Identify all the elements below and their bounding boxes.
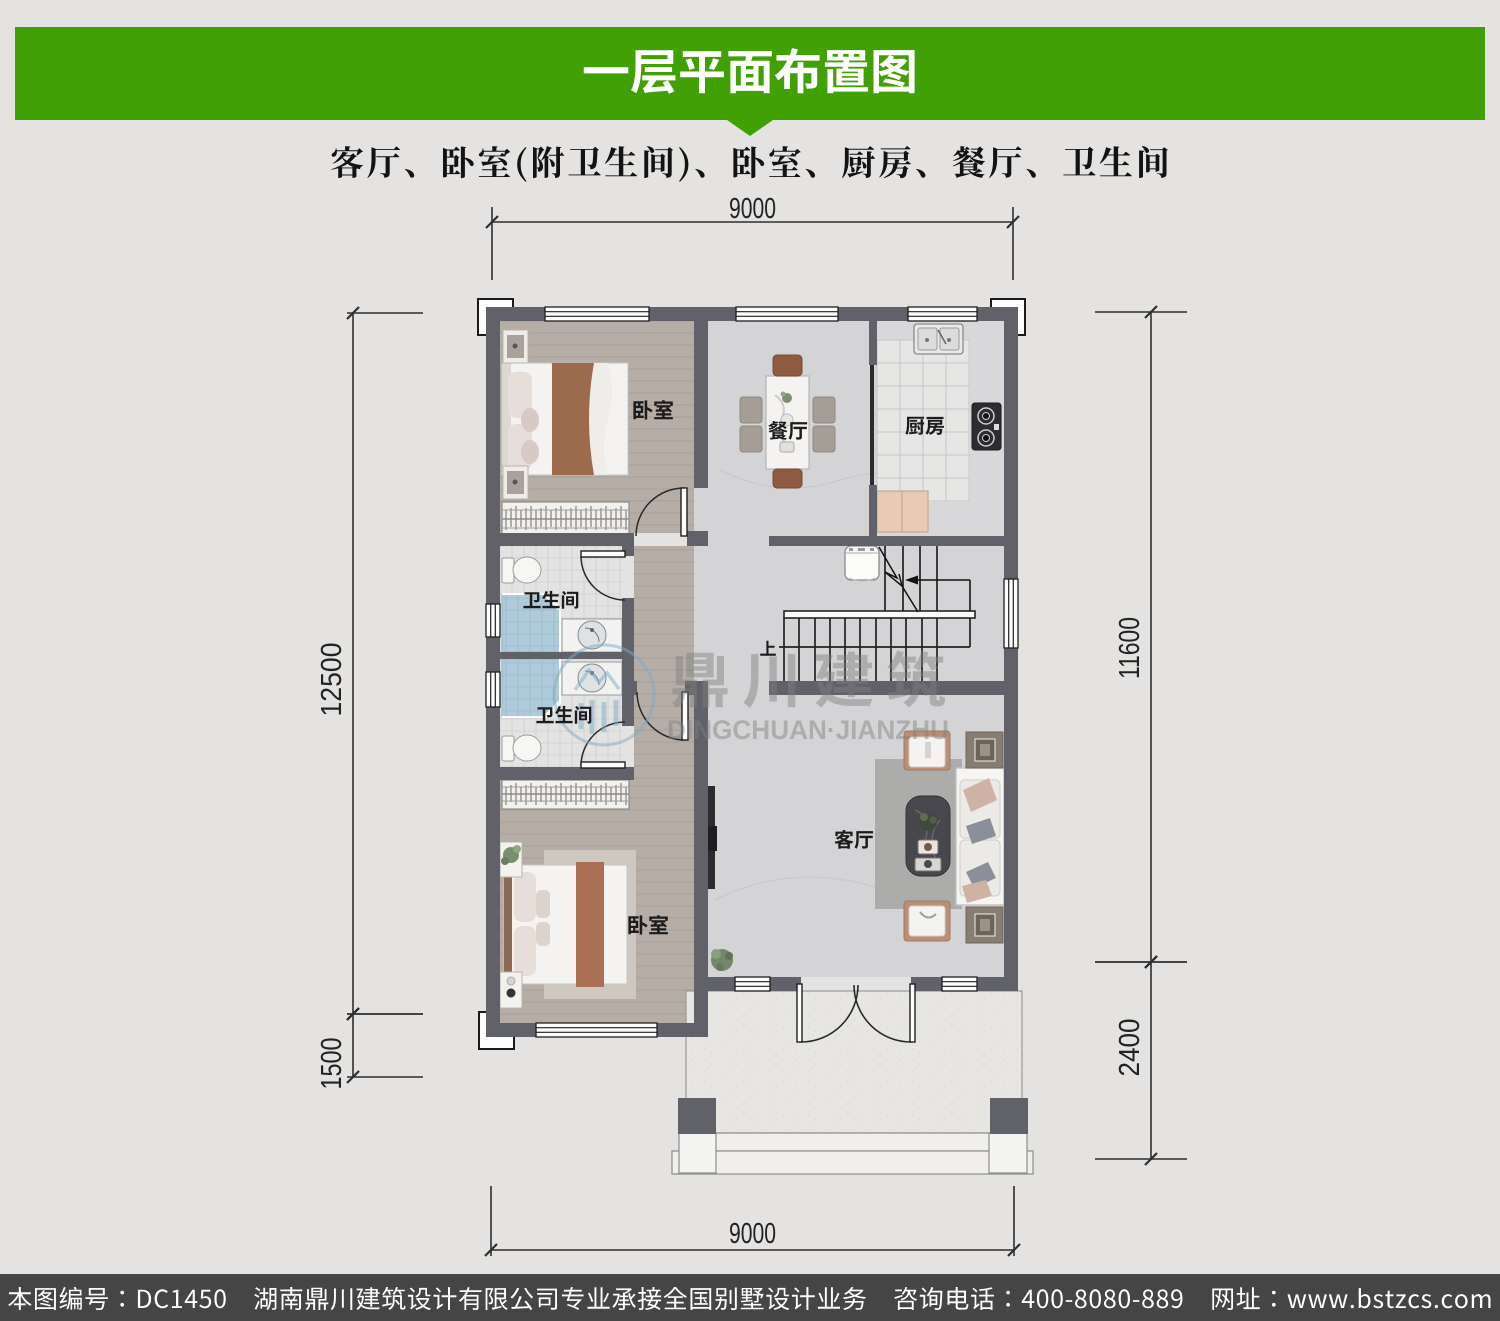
svg-text:DINGCHUAN·JIANZHU: DINGCHUAN·JIANZHU	[667, 715, 949, 745]
svg-text:11600: 11600	[1114, 617, 1146, 679]
svg-text:2400: 2400	[1114, 1019, 1146, 1077]
svg-text:9000: 9000	[729, 193, 776, 225]
svg-text:1500: 1500	[316, 1038, 348, 1090]
svg-text:9000: 9000	[729, 1218, 776, 1250]
svg-text:12500: 12500	[316, 643, 348, 717]
